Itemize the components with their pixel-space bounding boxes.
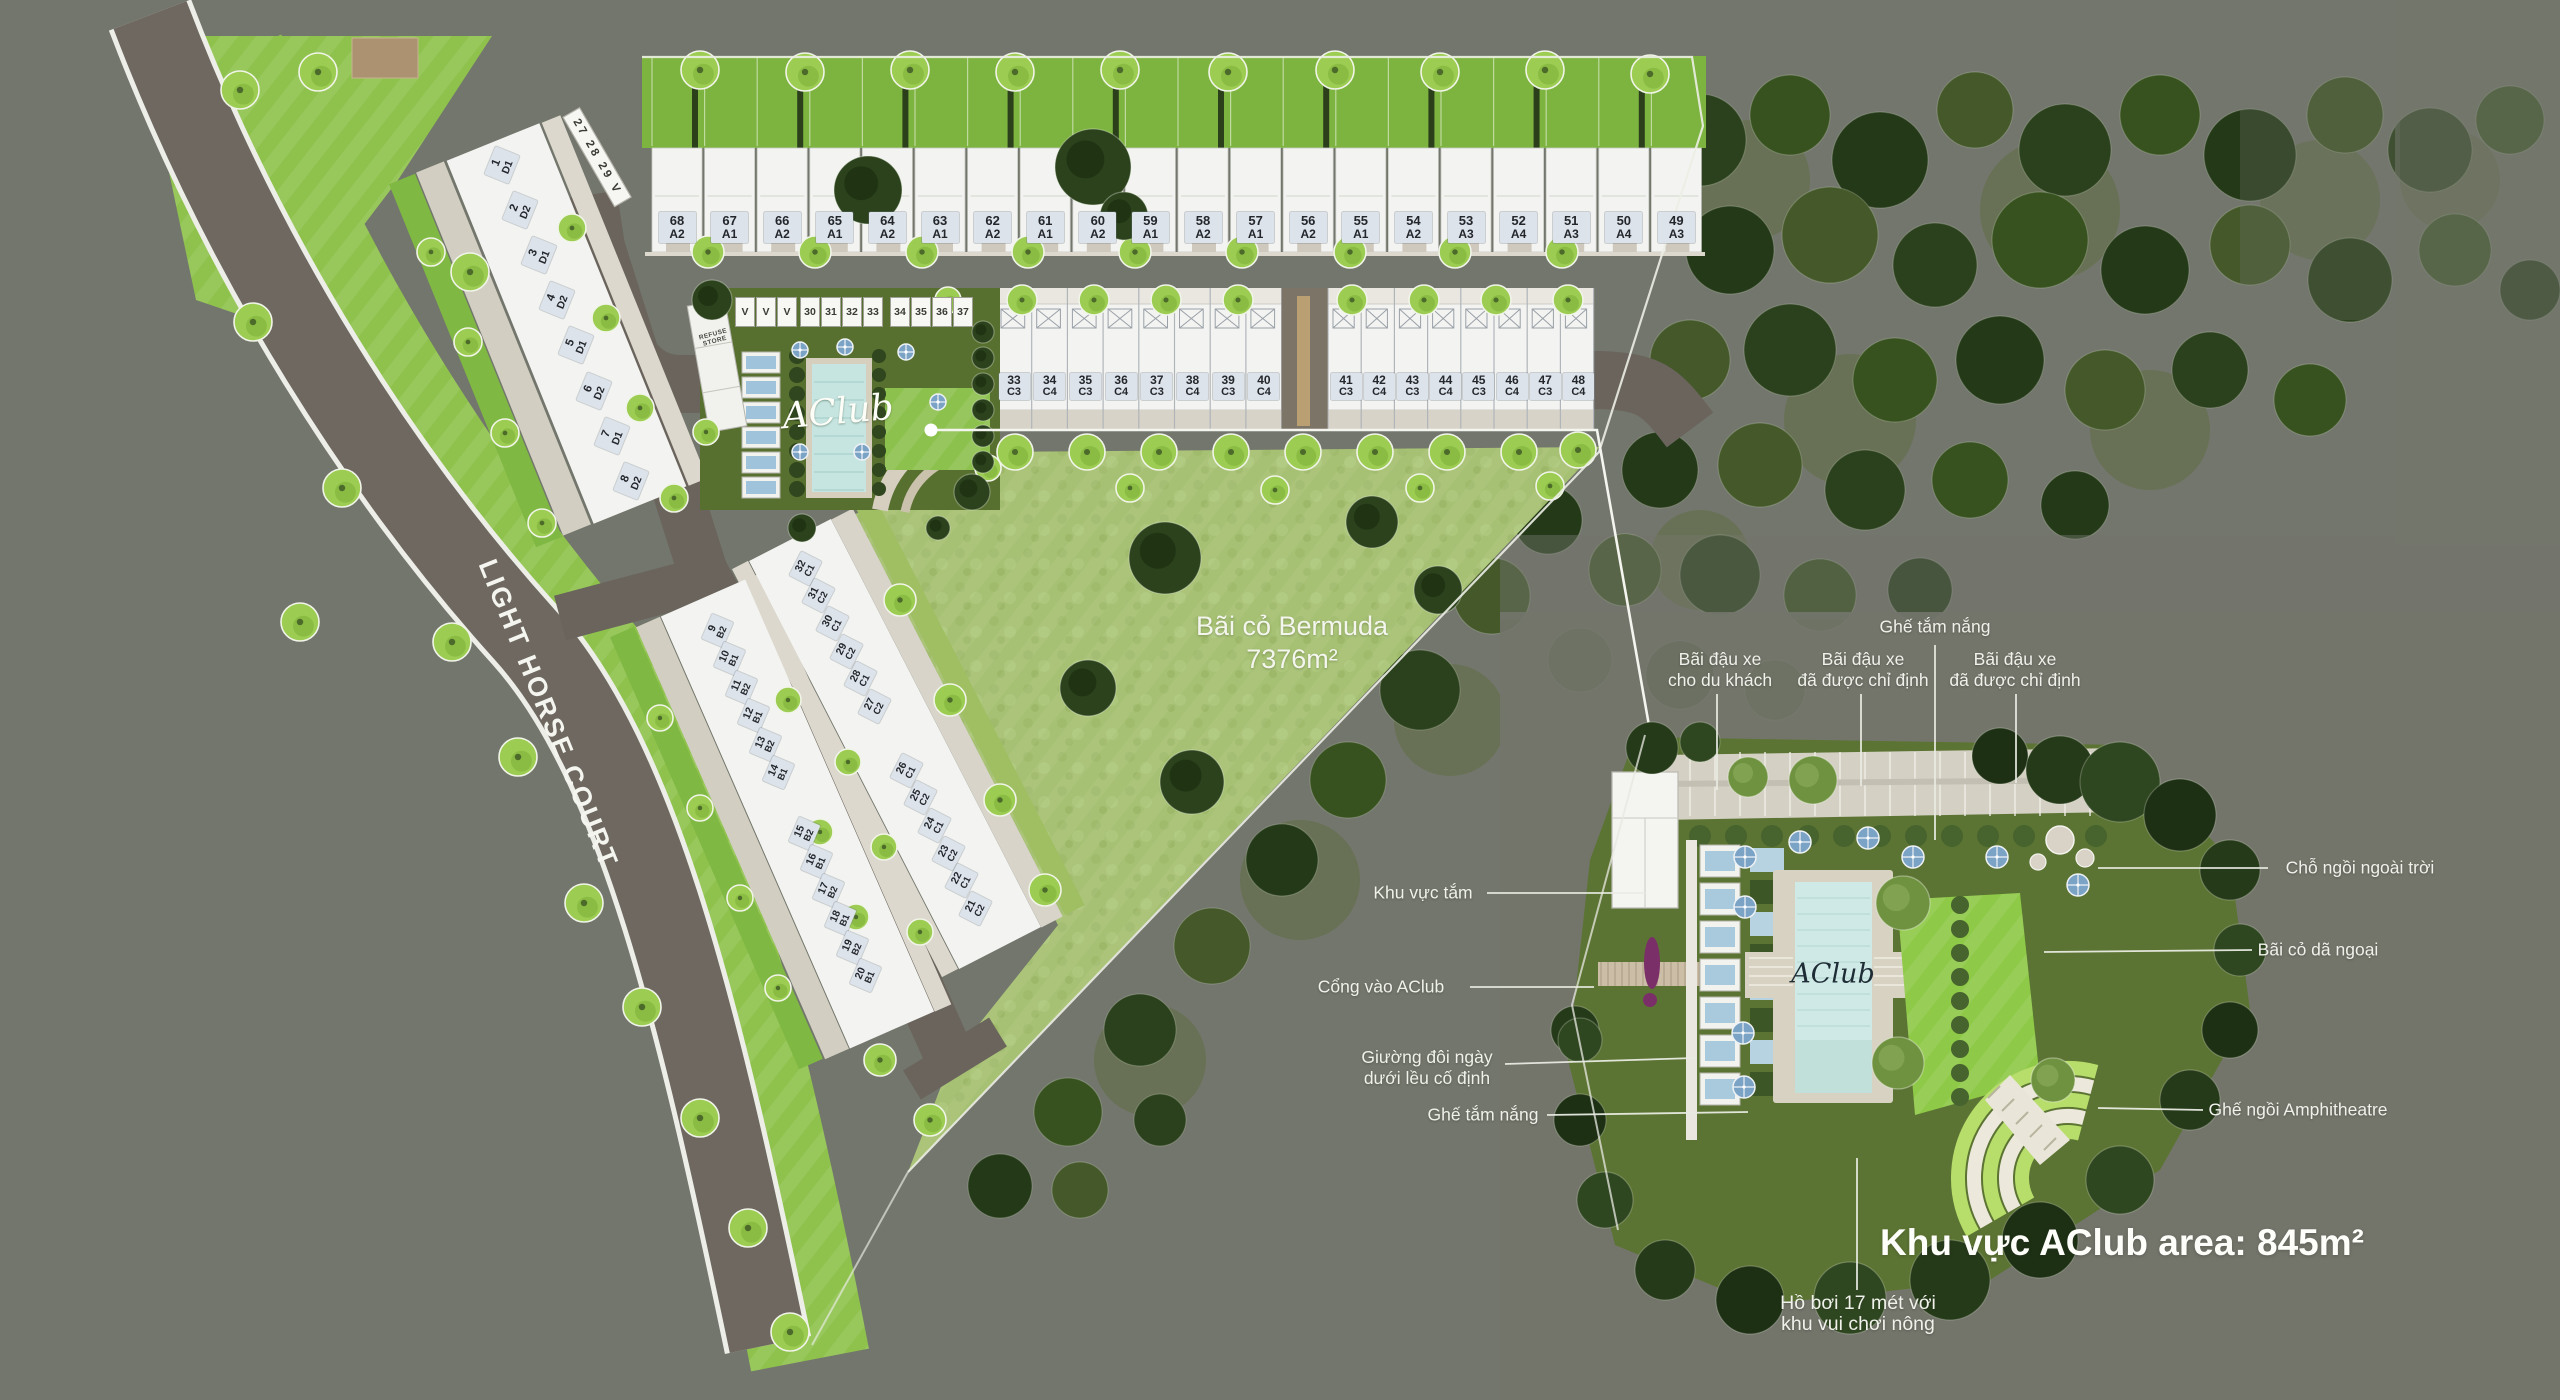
lot-plate-61: 61A1 bbox=[1027, 212, 1064, 243]
lot-plate-67: 67A1 bbox=[711, 212, 748, 243]
callout-line: Bãi đậu xe bbox=[1668, 649, 1772, 670]
callout-sun-loungers-left: Ghế tắm nắng bbox=[1428, 1105, 1539, 1126]
lot-plate-54: 54A2 bbox=[1395, 212, 1432, 243]
callout-assigned-parking-1: Bãi đậu xe đã được chỉ định bbox=[1797, 649, 1928, 691]
lot-plate-45: 45C3 bbox=[1463, 373, 1494, 400]
lot-plate-37: 37C3 bbox=[1141, 373, 1172, 400]
lot-plate-49: 49A3 bbox=[1658, 212, 1695, 243]
callout-outdoor-seating: Chỗ ngồi ngoài trời bbox=[2286, 858, 2435, 879]
parking-slot: 30 bbox=[800, 297, 820, 327]
tree-icon bbox=[1680, 722, 1720, 762]
tree-icon bbox=[1972, 728, 2028, 784]
callout-daybed: Giường đôi ngày dưới lều cố định bbox=[1361, 1047, 1492, 1089]
callout-line: khu vui chơi nông bbox=[1780, 1314, 1936, 1335]
callout-bath-area: Khu vực tắm bbox=[1373, 883, 1472, 904]
tree-icon bbox=[2086, 1146, 2154, 1214]
lot-plate-44: 44C4 bbox=[1430, 373, 1461, 400]
tree-icon bbox=[1554, 1094, 1606, 1146]
lot-plate-35: 35C3 bbox=[1070, 373, 1101, 400]
callout-pool: Hồ bơi 17 mét với khu vui chơi nông bbox=[1780, 1293, 1936, 1335]
lot-plate-50: 50A4 bbox=[1605, 212, 1642, 243]
callout-amphitheatre: Ghế ngồi Amphitheatre bbox=[2208, 1100, 2387, 1121]
visitor-parking-stalls: VVV bbox=[735, 297, 797, 327]
lot-plate-51: 51A3 bbox=[1553, 212, 1590, 243]
tree-icon bbox=[2144, 779, 2216, 851]
parking-slot: 31 bbox=[821, 297, 841, 327]
callout-line: dưới lều cố định bbox=[1361, 1068, 1492, 1089]
lot-plate-63: 63A1 bbox=[922, 212, 959, 243]
bermuda-lawn-name: Bãi cỏ Bermuda bbox=[1196, 610, 1388, 643]
parking-slot: 35 bbox=[911, 297, 931, 327]
site-plan-stage: LIGHT HORSE COURT 27 28 29 V Bãi cỏ Berm… bbox=[0, 0, 2560, 1400]
tree-icon bbox=[1716, 1266, 1784, 1334]
parking-slot: V bbox=[735, 297, 755, 327]
parking-stalls-30-33: 30313233 bbox=[800, 297, 883, 327]
lot-plate-52: 52A4 bbox=[1500, 212, 1537, 243]
callout-visitor-parking: Bãi đậu xe cho du khách bbox=[1668, 649, 1772, 691]
tree-icon bbox=[2200, 840, 2260, 900]
callout-line: Bãi đậu xe bbox=[1797, 649, 1928, 670]
lot-plate-66: 66A2 bbox=[764, 212, 801, 243]
lot-plate-64: 64A2 bbox=[869, 212, 906, 243]
lot-plate-56: 56A2 bbox=[1290, 212, 1327, 243]
aclub-logo-detail: AClub bbox=[1791, 959, 1874, 990]
lot-plate-33: 33C3 bbox=[999, 373, 1030, 400]
callout-line: Bãi đậu xe bbox=[1949, 649, 2080, 670]
lot-plate-58: 58A2 bbox=[1185, 212, 1222, 243]
callout-sun-loungers-top: Ghế tắm nắng bbox=[1880, 617, 1991, 638]
lot-plate-39: 39C3 bbox=[1213, 373, 1244, 400]
lot-plate-62: 62A2 bbox=[974, 212, 1011, 243]
tree-icon bbox=[1635, 1240, 1695, 1300]
lot-plate-47: 47C3 bbox=[1530, 373, 1561, 400]
parking-slot: V bbox=[777, 297, 797, 327]
callout-club-entrance: Cổng vào AClub bbox=[1318, 977, 1444, 998]
parking-slot: 32 bbox=[842, 297, 862, 327]
callout-line: cho du khách bbox=[1668, 670, 1772, 691]
callout-line: Hồ bơi 17 mét với bbox=[1780, 1293, 1936, 1314]
lot-plate-46: 46C4 bbox=[1497, 373, 1528, 400]
lot-plate-42: 42C4 bbox=[1364, 373, 1395, 400]
parking-slot: 34 bbox=[890, 297, 910, 327]
aclub-area-title: Khu vực AClub area: 845m² bbox=[1880, 1222, 2364, 1264]
callout-line: đã được chỉ định bbox=[1797, 670, 1928, 691]
parking-slot: 37 bbox=[953, 297, 973, 327]
lot-plate-68: 68A2 bbox=[659, 212, 696, 243]
lot-plate-40: 40C4 bbox=[1248, 373, 1279, 400]
site-plan-canvas bbox=[0, 0, 2560, 1400]
tree-icon bbox=[2202, 1002, 2258, 1058]
parking-slot: 33 bbox=[863, 297, 883, 327]
parking-slot: V bbox=[756, 297, 776, 327]
lot-plate-34: 34C4 bbox=[1034, 373, 1065, 400]
lot-plate-55: 55A1 bbox=[1342, 212, 1379, 243]
lot-plate-60: 60A2 bbox=[1079, 212, 1116, 243]
callout-assigned-parking-2: Bãi đậu xe đã được chỉ định bbox=[1949, 649, 2080, 691]
lot-plate-41: 41C3 bbox=[1331, 373, 1362, 400]
callout-line: Giường đôi ngày bbox=[1361, 1047, 1492, 1068]
lot-plate-65: 65A1 bbox=[816, 212, 853, 243]
parking-slot: 36 bbox=[932, 297, 952, 327]
callout-picnic-lawn: Bãi cỏ dã ngoại bbox=[2258, 940, 2379, 961]
callout-line: đã được chỉ định bbox=[1949, 670, 2080, 691]
bermuda-lawn-area: 7376m² bbox=[1196, 643, 1388, 676]
tree-icon bbox=[1626, 722, 1678, 774]
lot-plate-36: 36C4 bbox=[1106, 373, 1137, 400]
lot-plate-59: 59A1 bbox=[1132, 212, 1169, 243]
lot-plate-38: 38C4 bbox=[1177, 373, 1208, 400]
lot-plate-53: 53A3 bbox=[1448, 212, 1485, 243]
lot-plate-57: 57A1 bbox=[1237, 212, 1274, 243]
lot-plate-43: 43C3 bbox=[1397, 373, 1428, 400]
tree-icon bbox=[1577, 1172, 1633, 1228]
parking-stalls-34-37: 34353637 bbox=[890, 297, 973, 327]
bermuda-lawn-label: Bãi cỏ Bermuda 7376m² bbox=[1196, 610, 1388, 676]
lot-plate-48: 48C4 bbox=[1563, 373, 1594, 400]
